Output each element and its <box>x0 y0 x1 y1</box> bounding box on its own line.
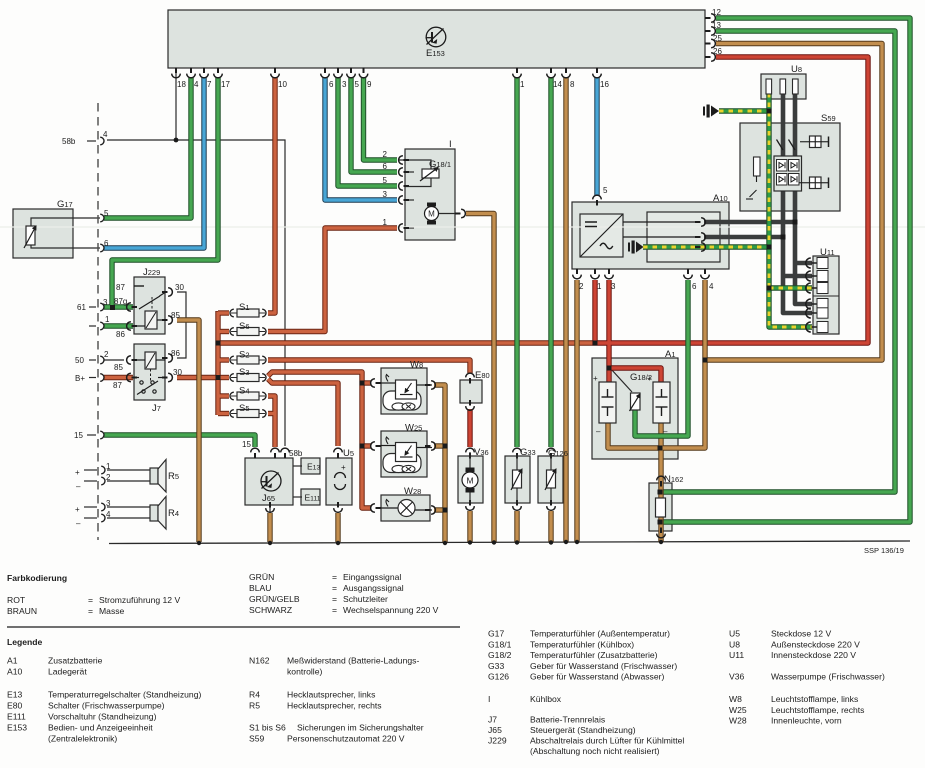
svg-text:V36: V36 <box>474 447 489 458</box>
svg-text:R4: R4 <box>168 508 179 519</box>
svg-text:15: 15 <box>242 440 251 449</box>
svg-text:A10: A10 <box>7 667 23 677</box>
svg-text:M: M <box>466 476 473 486</box>
svg-text:Außensteckdose 220 V: Außensteckdose 220 V <box>771 639 860 649</box>
svg-text:E153: E153 <box>426 48 445 59</box>
svg-text:=: = <box>332 605 337 615</box>
svg-text:S6: S6 <box>239 321 250 332</box>
svg-text:1: 1 <box>383 218 388 227</box>
svg-text:G126: G126 <box>548 448 568 459</box>
svg-text:=: = <box>332 594 337 604</box>
svg-text:(Abschaltung noch nicht realis: (Abschaltung noch nicht realisiert) <box>530 746 660 756</box>
svg-text:87g: 87g <box>114 297 127 306</box>
svg-text:Temperaturfühler (Zusatzbatter: Temperaturfühler (Zusatzbatterie) <box>530 650 658 660</box>
svg-text:Leuchtstofflampe, rechts: Leuchtstofflampe, rechts <box>771 705 864 715</box>
svg-text:I: I <box>449 139 452 150</box>
svg-text:Schutzleiter: Schutzleiter <box>343 594 388 604</box>
svg-text:S1: S1 <box>239 302 250 313</box>
svg-text:4: 4 <box>106 510 111 519</box>
svg-text:S5: S5 <box>239 403 250 414</box>
svg-text:A10: A10 <box>713 193 728 204</box>
svg-text:BRAUN: BRAUN <box>7 606 37 616</box>
svg-text:+: + <box>341 463 346 472</box>
svg-text:Ladegerät: Ladegerät <box>48 667 87 677</box>
svg-text:SCHWARZ: SCHWARZ <box>249 605 292 615</box>
svg-text:15: 15 <box>74 431 83 440</box>
svg-text:6: 6 <box>383 162 388 171</box>
svg-text:I: I <box>488 694 490 704</box>
svg-text:GRÜN/GELB: GRÜN/GELB <box>249 594 300 604</box>
svg-text:Steuergerät (Standheizung): Steuergerät (Standheizung) <box>530 725 636 735</box>
svg-text:Wechselspannung 220 V: Wechselspannung 220 V <box>343 605 439 615</box>
svg-text:W8: W8 <box>410 360 423 371</box>
svg-text:4: 4 <box>103 130 108 139</box>
svg-text:G126: G126 <box>488 672 509 682</box>
svg-text:E80: E80 <box>7 701 23 711</box>
svg-text:E153: E153 <box>7 723 27 733</box>
svg-text:A1: A1 <box>665 349 676 360</box>
svg-text:17: 17 <box>221 80 230 89</box>
svg-text:Innenleuchte, vorn: Innenleuchte, vorn <box>771 716 842 726</box>
svg-text:R5: R5 <box>168 471 179 482</box>
svg-text:Geber für Wasserstand (Frischw: Geber für Wasserstand (Frischwasser) <box>530 661 677 671</box>
svg-text:14: 14 <box>553 80 562 89</box>
svg-text:Bedien- und Anzeigeeinheit: Bedien- und Anzeigeeinheit <box>48 723 153 733</box>
svg-text:G18/1: G18/1 <box>429 159 451 170</box>
svg-text:5: 5 <box>355 80 360 89</box>
svg-text:30: 30 <box>175 283 184 292</box>
svg-text:1: 1 <box>597 282 602 291</box>
svg-text:86: 86 <box>116 330 125 339</box>
svg-text:7: 7 <box>207 80 212 89</box>
svg-text:M: M <box>428 210 435 219</box>
svg-text:=: = <box>332 583 337 593</box>
svg-text:58b: 58b <box>289 449 303 458</box>
svg-text:Geber für Wasserstand (Abwasse: Geber für Wasserstand (Abwasser) <box>530 672 664 682</box>
svg-text:S3: S3 <box>239 367 250 378</box>
svg-text:18: 18 <box>177 80 186 89</box>
svg-text:U5: U5 <box>343 448 354 459</box>
svg-text:6: 6 <box>692 282 697 291</box>
svg-text:Batterie-Trennrelais: Batterie-Trennrelais <box>530 715 605 725</box>
svg-text:G33: G33 <box>520 447 536 458</box>
svg-text:61: 61 <box>77 303 86 312</box>
svg-text:Hecklautsprecher, rechts: Hecklautsprecher, rechts <box>287 701 382 711</box>
svg-text:58b: 58b <box>62 137 76 146</box>
svg-text:Stromzuführung 12 V: Stromzuführung 12 V <box>99 595 180 605</box>
svg-text:3: 3 <box>103 298 108 307</box>
svg-text:30: 30 <box>173 368 182 377</box>
svg-text:–: – <box>76 519 81 528</box>
svg-text:86: 86 <box>171 349 180 358</box>
svg-text:9: 9 <box>367 80 372 89</box>
svg-text:kontrolle): kontrolle) <box>287 667 322 677</box>
svg-text:Innensteckdose 220 V: Innensteckdose 220 V <box>771 650 856 660</box>
svg-text:13: 13 <box>712 21 721 30</box>
svg-text:J7: J7 <box>152 403 161 414</box>
svg-text:2: 2 <box>104 350 109 359</box>
svg-text:+: + <box>75 468 80 477</box>
svg-text:1: 1 <box>106 462 111 471</box>
svg-text:12: 12 <box>712 8 721 17</box>
svg-text:E111: E111 <box>7 712 26 722</box>
svg-text:J229: J229 <box>488 736 507 746</box>
svg-text:8: 8 <box>570 80 575 89</box>
svg-text:J65: J65 <box>262 493 275 504</box>
svg-text:Zusatzbatterie: Zusatzbatterie <box>48 656 103 666</box>
svg-text:85: 85 <box>114 363 123 372</box>
svg-text:U8: U8 <box>729 639 740 649</box>
svg-text:1: 1 <box>520 80 525 89</box>
svg-text:SSP 136/19: SSP 136/19 <box>864 546 904 555</box>
svg-text:R4: R4 <box>249 690 260 700</box>
svg-text:W8: W8 <box>729 694 742 704</box>
svg-text:Meßwiderstand (Batterie-Ladung: Meßwiderstand (Batterie-Ladungs- <box>287 656 419 666</box>
svg-text:J7: J7 <box>488 715 497 725</box>
svg-text:G33: G33 <box>488 661 504 671</box>
svg-text:3: 3 <box>342 80 347 89</box>
svg-text:+: + <box>75 505 80 514</box>
svg-text:5: 5 <box>603 186 608 195</box>
svg-text:2: 2 <box>383 150 388 159</box>
svg-text:W25: W25 <box>729 705 747 715</box>
svg-text:87: 87 <box>113 381 122 390</box>
svg-text:S59: S59 <box>249 734 265 744</box>
svg-text:Schalter (Frischwasserpumpe): Schalter (Frischwasserpumpe) <box>48 701 165 711</box>
svg-text:G17: G17 <box>488 629 504 639</box>
svg-text:Personenschutzautomat 220 V: Personenschutzautomat 220 V <box>287 734 405 744</box>
svg-text:25: 25 <box>713 34 722 43</box>
svg-text:G18/2: G18/2 <box>488 650 512 660</box>
svg-text:Farbkodierung: Farbkodierung <box>7 573 67 583</box>
svg-text:N162: N162 <box>249 656 270 666</box>
svg-text:J229: J229 <box>143 267 160 278</box>
svg-text:A1: A1 <box>7 656 18 666</box>
svg-text:S2: S2 <box>239 350 250 361</box>
svg-text:87: 87 <box>116 283 125 292</box>
svg-text:5: 5 <box>104 209 109 218</box>
svg-text:+: + <box>647 374 652 383</box>
svg-text:3: 3 <box>611 282 616 291</box>
svg-text:(Zentralelektronik): (Zentralelektronik) <box>48 734 117 744</box>
svg-text:J65: J65 <box>488 725 502 735</box>
svg-text:2: 2 <box>579 282 584 291</box>
svg-text:16: 16 <box>600 80 609 89</box>
svg-text:S4: S4 <box>239 386 250 397</box>
svg-text:=: = <box>332 572 337 582</box>
svg-text:Wasserpumpe (Frischwasser): Wasserpumpe (Frischwasser) <box>771 672 885 682</box>
svg-text:G17: G17 <box>57 199 73 210</box>
svg-text:B+: B+ <box>75 374 85 383</box>
svg-text:6: 6 <box>329 80 334 89</box>
svg-text:50: 50 <box>75 356 84 365</box>
svg-text:V36: V36 <box>729 672 745 682</box>
svg-text:U11: U11 <box>820 247 835 258</box>
svg-text:Leuchtstofflampe, links: Leuchtstofflampe, links <box>771 694 858 704</box>
svg-text:Masse: Masse <box>99 606 125 616</box>
svg-text:R5: R5 <box>249 701 260 711</box>
svg-text:85: 85 <box>171 311 180 320</box>
svg-text:S1 bis S6: S1 bis S6 <box>249 723 286 733</box>
svg-text:Sicherungen im Sicherungshalte: Sicherungen im Sicherungshalter <box>297 723 424 733</box>
svg-text:Steckdose 12 V: Steckdose 12 V <box>771 629 831 639</box>
svg-text:26: 26 <box>713 47 722 56</box>
svg-text:2: 2 <box>106 473 111 482</box>
svg-text:5: 5 <box>383 176 388 185</box>
svg-text:G18/1: G18/1 <box>488 639 512 649</box>
svg-text:3: 3 <box>383 190 388 199</box>
svg-text:Legende: Legende <box>7 637 43 647</box>
svg-text:3: 3 <box>106 499 111 508</box>
svg-text:E13: E13 <box>7 690 23 700</box>
svg-text:4: 4 <box>194 80 199 89</box>
svg-text:Vorschaltuhr (Standheizung): Vorschaltuhr (Standheizung) <box>48 712 157 722</box>
svg-text:E80: E80 <box>475 370 490 381</box>
svg-text:U8: U8 <box>791 64 802 75</box>
svg-text:=: = <box>88 595 93 605</box>
svg-text:W25: W25 <box>405 423 422 434</box>
svg-text:Abschaltrelais durch Lüfter fü: Abschaltrelais durch Lüfter für Kühlmitt… <box>530 736 684 746</box>
svg-text:Ausgangssignal: Ausgangssignal <box>343 583 404 593</box>
svg-text:Kühlbox: Kühlbox <box>530 694 562 704</box>
svg-text:BLAU: BLAU <box>249 583 271 593</box>
svg-text:4: 4 <box>709 282 714 291</box>
svg-text:N162: N162 <box>664 474 683 485</box>
svg-text:Temperaturfühler (Außentempera: Temperaturfühler (Außentemperatur) <box>530 629 670 639</box>
svg-text:U5: U5 <box>729 629 740 639</box>
svg-text:–: – <box>663 427 668 436</box>
svg-text:Eingangssignal: Eingangssignal <box>343 572 401 582</box>
svg-text:W28: W28 <box>404 486 421 497</box>
svg-text:GRÜN: GRÜN <box>249 572 274 582</box>
svg-text:6: 6 <box>104 239 109 248</box>
svg-text:S59: S59 <box>821 113 836 124</box>
svg-text:=: = <box>88 606 93 616</box>
svg-text:W28: W28 <box>729 716 747 726</box>
svg-text:Temperaturregelschalter (Stand: Temperaturregelschalter (Standheizung) <box>48 690 201 700</box>
svg-text:ROT: ROT <box>7 595 26 605</box>
svg-text:+: + <box>593 374 598 383</box>
svg-text:Hecklautsprecher, links: Hecklautsprecher, links <box>287 690 375 700</box>
svg-text:–: – <box>76 482 81 491</box>
svg-text:1: 1 <box>105 315 110 324</box>
svg-text:–: – <box>596 427 601 436</box>
svg-text:U11: U11 <box>729 650 744 660</box>
svg-text:10: 10 <box>278 80 287 89</box>
svg-text:Temperaturfühler (Kühlbox): Temperaturfühler (Kühlbox) <box>530 639 634 649</box>
